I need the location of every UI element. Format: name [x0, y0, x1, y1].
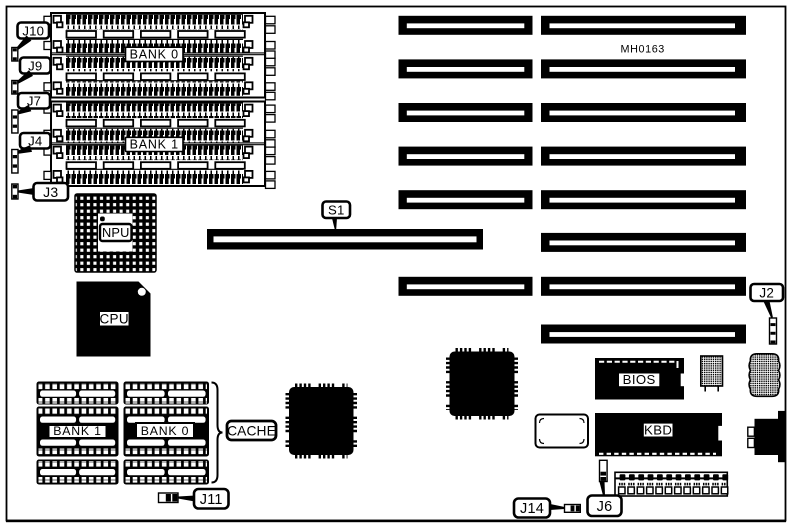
svg-text:BANK 0: BANK 0 [130, 47, 179, 61]
svg-text:BANK 1: BANK 1 [53, 424, 102, 438]
svg-text:BIOS: BIOS [623, 372, 656, 387]
svg-text:BANK 0: BANK 0 [141, 424, 190, 438]
svg-text:CPU: CPU [99, 311, 128, 326]
svg-text:MH0163: MH0163 [621, 43, 665, 55]
svg-text:J10: J10 [22, 23, 44, 38]
svg-text:BANK 1: BANK 1 [130, 138, 179, 152]
svg-text:J9: J9 [28, 58, 42, 73]
svg-text:S1: S1 [328, 203, 345, 218]
svg-text:J11: J11 [200, 492, 223, 508]
svg-text:J3: J3 [43, 184, 58, 200]
svg-text:CACHE: CACHE [227, 423, 276, 438]
svg-text:J14: J14 [520, 501, 544, 517]
svg-text:J2: J2 [759, 285, 774, 300]
svg-text:J6: J6 [597, 499, 613, 515]
svg-text:KBD: KBD [644, 422, 672, 437]
svg-text:NPU: NPU [102, 225, 130, 240]
